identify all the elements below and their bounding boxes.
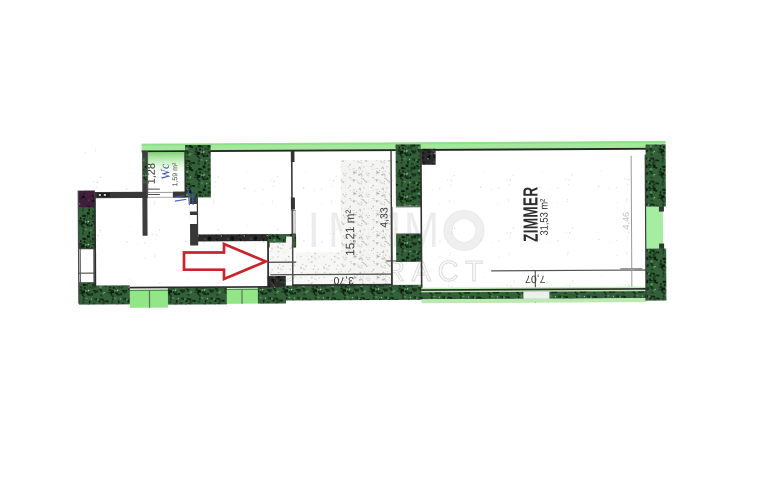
svg-text:4,33: 4,33 xyxy=(378,207,390,228)
svg-text:1,59 m²: 1,59 m² xyxy=(172,162,179,186)
svg-text:31,53 m²: 31,53 m² xyxy=(539,198,551,235)
svg-text:15,21 m²: 15,21 m² xyxy=(343,210,358,256)
svg-text:4,46: 4,46 xyxy=(621,212,631,230)
svg-text:7,07: 7,07 xyxy=(525,273,546,285)
svg-text:Wc: Wc xyxy=(157,163,173,181)
